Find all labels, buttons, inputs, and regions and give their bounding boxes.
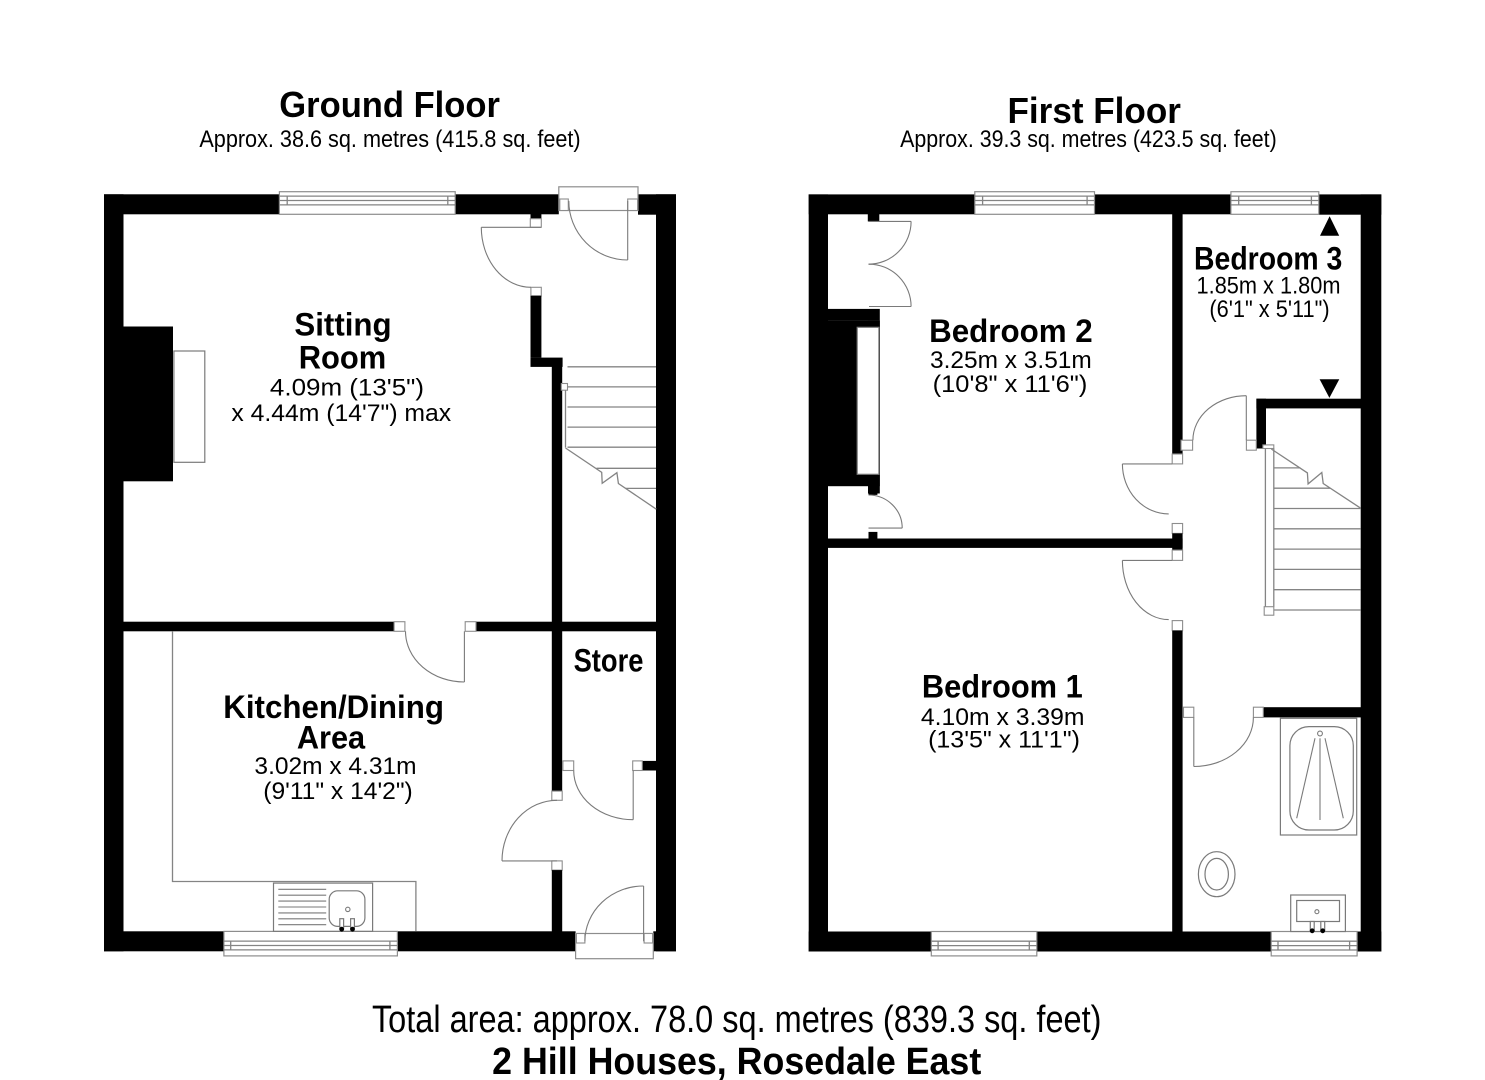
- svg-text:Bedroom 1: Bedroom 1: [922, 669, 1083, 705]
- svg-text:Total area: approx. 78.0 sq. m: Total area: approx. 78.0 sq. metres (839…: [372, 999, 1102, 1041]
- svg-text:Approx. 38.6 sq. metres (415.8: Approx. 38.6 sq. metres (415.8 sq. feet): [199, 126, 580, 153]
- svg-text:4.09m (13'5"): 4.09m (13'5"): [270, 375, 424, 402]
- svg-text:First Floor: First Floor: [1008, 90, 1181, 131]
- svg-text:Room: Room: [299, 340, 387, 376]
- svg-text:3.02m x 4.31m: 3.02m x 4.31m: [254, 753, 416, 780]
- svg-text:(6'1" x 5'11"): (6'1" x 5'11"): [1209, 296, 1329, 323]
- svg-text:(10'8" x 11'6"): (10'8" x 11'6"): [933, 371, 1088, 398]
- svg-text:Bedroom 3: Bedroom 3: [1194, 240, 1342, 276]
- svg-text:Bedroom 2: Bedroom 2: [929, 313, 1093, 349]
- svg-text:(13'5" x 11'1"): (13'5" x 11'1"): [928, 727, 1080, 754]
- svg-text:x 4.44m (14'7") max: x 4.44m (14'7") max: [231, 400, 451, 427]
- svg-text:Sitting: Sitting: [294, 306, 391, 342]
- svg-text:(9'11" x 14'2"): (9'11" x 14'2"): [263, 778, 413, 805]
- svg-text:Area: Area: [297, 719, 365, 755]
- svg-text:Store: Store: [574, 643, 644, 679]
- svg-text:Ground Floor: Ground Floor: [279, 84, 500, 125]
- svg-text:2 Hill Houses, Rosedale East: 2 Hill Houses, Rosedale East: [492, 1041, 981, 1080]
- svg-text:Approx. 39.3 sq. metres (423.5: Approx. 39.3 sq. metres (423.5 sq. feet): [900, 126, 1277, 153]
